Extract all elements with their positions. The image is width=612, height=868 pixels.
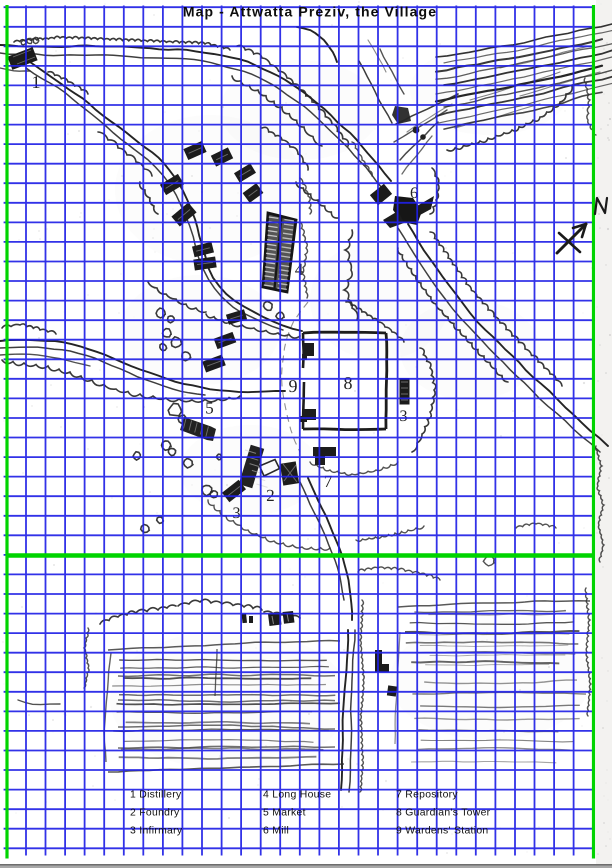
svg-text:4 Long House: 4 Long House <box>263 790 331 801</box>
svg-text:5 Market: 5 Market <box>263 808 306 819</box>
svg-text:2 Foundry: 2 Foundry <box>130 808 180 819</box>
svg-text:9 Wardens' Station: 9 Wardens' Station <box>396 826 488 837</box>
svg-text:Map - Attwatta Preziv, the Vil: Map - Attwatta Preziv, the Village <box>183 4 437 20</box>
svg-text:8 Guardian's Tower: 8 Guardian's Tower <box>396 808 491 819</box>
svg-text:7 Repository: 7 Repository <box>396 790 458 801</box>
svg-text:1 Distillery: 1 Distillery <box>130 790 182 801</box>
svg-text:3 Infirmary: 3 Infirmary <box>130 826 183 837</box>
svg-text:6 Mill: 6 Mill <box>263 826 289 837</box>
